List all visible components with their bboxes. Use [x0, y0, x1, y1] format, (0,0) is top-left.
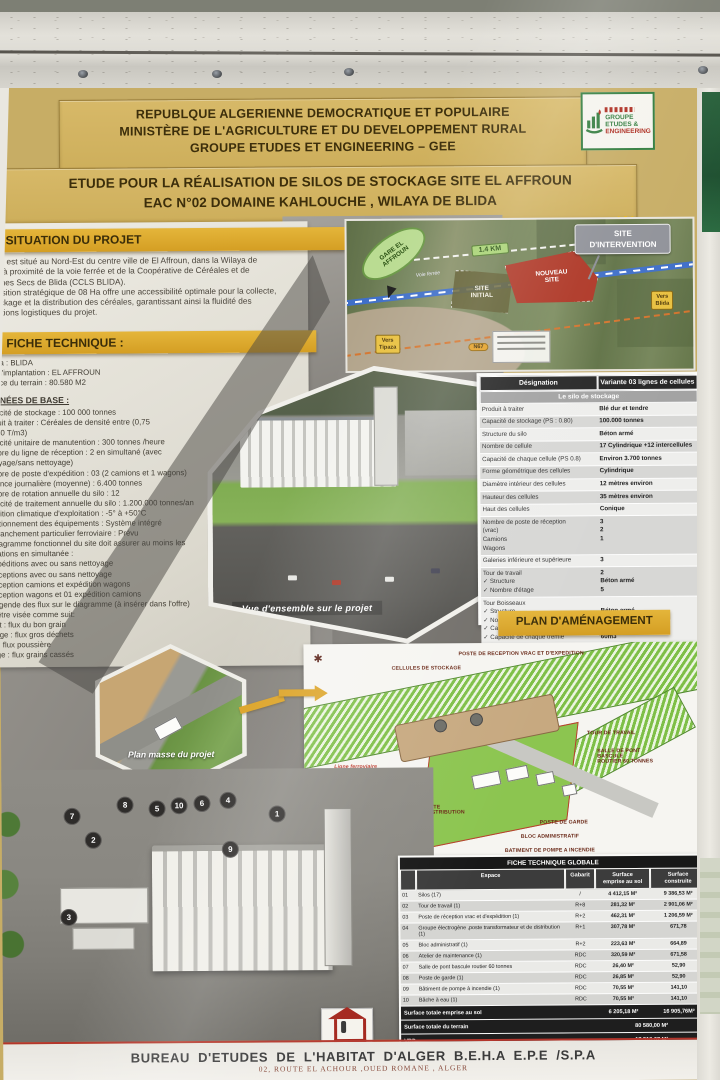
silo-table-label: Hauteur des cellules: [480, 491, 597, 503]
global-table-cell: 223,63 M²: [595, 939, 650, 949]
silo-table-label: Produit à traiter: [480, 403, 597, 415]
global-table-cell: 462,31 M²: [595, 911, 650, 921]
gee-logo-text: GROUPE ETUDES & ENGINEERING: [605, 107, 651, 135]
silo-table-value: 3: [598, 554, 697, 566]
render-low-building2: [72, 928, 134, 950]
render-marker: 8: [116, 797, 133, 814]
gee-text-line3: ENGINEERING: [605, 128, 651, 135]
global-table-cell: 52,90: [651, 972, 697, 982]
global-table-cell: 06: [401, 952, 417, 962]
map-railway-label: Voie ferrée: [416, 270, 441, 279]
plan-annotation: SALLE DE PONT BASCULE ROUTIER 60 TONNES: [597, 748, 657, 764]
silo-table-label: Capacité de stockage (PS : 0.80): [480, 416, 597, 428]
silo-table-value: Environ 3.700 tonnes: [598, 453, 697, 465]
global-table-cell: 52,90: [651, 961, 697, 971]
render-marker: 10: [170, 797, 187, 814]
plan-building: [561, 783, 577, 797]
photo-of-project-poster: REPUBLQUE ALGERIENNE DEMOCRATIQUE ET POP…: [0, 0, 720, 1080]
render-marker: 4: [219, 792, 236, 809]
global-table-cell: R+2: [565, 939, 595, 949]
global-table-cell: Tour de travail (1): [416, 900, 565, 911]
beha-roof-icon: [328, 1007, 366, 1019]
render-marker: 2: [85, 832, 102, 849]
plan-silo-circle: [470, 713, 483, 726]
global-table-cell: 26,85 M²: [596, 972, 651, 982]
global-table-cell: 141,10: [651, 994, 697, 1004]
map-gare-label: GARE EL AFFROUN: [354, 217, 435, 290]
plan-annotation: TOUR DE TRAVAIL: [587, 730, 635, 736]
silo-table-value: 3 2 1: [598, 516, 697, 554]
global-table-cell: Bâtiment de pompe à incendie (1): [417, 983, 566, 994]
map-route-badge: N67: [468, 343, 488, 351]
global-table-body: 01Silos (17)/4 412,15 M²9 386,53 M²02Tou…: [400, 889, 697, 1007]
gee-logo: GROUPE ETUDES & ENGINEERING: [581, 92, 655, 151]
compass-icon: ✱: [313, 652, 322, 665]
global-table-cell: 141,10: [651, 983, 697, 993]
global-table-cell: 07: [401, 963, 417, 973]
adjacent-poster-sliver: [702, 92, 720, 232]
global-table-col-header: [400, 870, 416, 891]
gee-logo-icon: [585, 104, 606, 138]
render-marker: 7: [64, 808, 81, 825]
global-table-cell: Groupe électrogène ,poste transformateur…: [416, 922, 565, 939]
masterplan-caption: Plan masse du projet: [92, 749, 250, 760]
render-car: [332, 580, 341, 585]
plan-annotation: POSTE DE RECEPTION VRAC ET D'EXPEDITION: [458, 650, 583, 656]
render-silo-battery: [152, 844, 333, 971]
silo-table-col1: Désignation: [480, 375, 598, 391]
silo-table-col2: Variante 03 lignes de cellules: [597, 375, 697, 391]
global-table-cell: RDC: [566, 994, 596, 1004]
global-table-cell: 70,55 M²: [596, 983, 651, 993]
silo-table-value: Béton armé: [597, 428, 697, 440]
global-table-cell: 671,58: [651, 950, 697, 960]
silo-spec-table: Désignation Variante 03 lignes de cellul…: [477, 372, 697, 626]
arrow-head-icon: [315, 685, 328, 701]
render-car: [385, 577, 394, 582]
global-table-cell: 09: [401, 985, 417, 995]
render-marker: 5: [149, 800, 166, 817]
global-table-cell: R+2: [565, 911, 595, 921]
bolt-icon: [344, 68, 354, 76]
map-legend-box: [493, 331, 551, 363]
global-table-cell: 01: [400, 891, 416, 901]
render-silos-block: [240, 416, 396, 487]
global-table-cell: 671,78: [650, 922, 697, 938]
map-distance-badge: 1.4 KM: [471, 242, 508, 256]
global-table-cell: Atelier de maintenance (1): [417, 950, 566, 961]
render-marker: 1: [269, 805, 286, 822]
silo-table-body: Produit à traiterBlé dur et tendreCapaci…: [480, 403, 697, 646]
global-table-cell: Bâche à eau (1): [417, 994, 566, 1005]
map-intervention-label: SITE D'INTERVENTION: [575, 223, 671, 254]
global-table-cell: 04: [400, 924, 416, 940]
silo-table-value: 17 Cylindrique +12 intercellules: [597, 440, 697, 452]
global-total-value: 6 205,18 M²: [596, 1005, 651, 1018]
render-work-tower: [324, 808, 353, 966]
global-table-col-header: Surface construite: [650, 868, 697, 889]
render-markers: 85106417293: [0, 88, 694, 90]
global-table-cell: 2 901,06 M²: [650, 900, 697, 910]
global-table-cell: RDC: [566, 972, 596, 982]
global-total-value: 80 580,00 M²: [596, 1019, 697, 1033]
situation-paragraph: Le site est situé au Nord-Est du centre …: [0, 254, 324, 318]
global-table-cell: 70,55 M²: [596, 994, 651, 1004]
bolt-icon: [698, 66, 708, 74]
render-car: [431, 569, 440, 574]
plan-annotation: BLOC ADMINISTRATIF: [521, 833, 579, 839]
global-table-cell: R+8: [565, 900, 595, 910]
render-marker: 3: [60, 909, 77, 926]
silo-table-label: Forme géométrique des cellules: [480, 466, 597, 478]
satellite-map: Voie ferrée SITE INITIAL NOUVEAU SITE SI…: [344, 217, 695, 373]
global-table-cell: 05: [400, 941, 416, 951]
render-headhouse-tower: [374, 387, 399, 486]
global-table-cell: 307,78 M²: [595, 922, 650, 938]
global-table-header: EspaceGabaritSurface emprise au solSurfa…: [400, 868, 697, 891]
render-marker: 9: [222, 841, 239, 858]
silo-table-value: 100.000 tonnes: [597, 415, 697, 427]
global-table-cell: 02: [400, 902, 416, 912]
silo-table-value: 35 mètres environ: [598, 491, 697, 503]
plan-annotation: POSTE DE GARDE: [540, 819, 588, 825]
global-table-cell: Silos (17): [416, 889, 565, 900]
global-table-col-header: Espace: [416, 868, 565, 890]
beha-house-icon: [334, 1019, 366, 1042]
fiche-heading: FICHE TECHNIQUE :: [0, 330, 316, 354]
arrow-connector: [279, 689, 317, 696]
map-site-initial: SITE INITIAL: [451, 269, 513, 313]
render-marker: 6: [193, 795, 210, 812]
silo-table-label: Structure du silo: [480, 428, 597, 440]
plan-annotation: CELLULES DE STOCKAGE: [392, 665, 462, 671]
fiche-items: Wilaya : BLIDALieu d'implantation : EL A…: [0, 356, 313, 389]
global-table-cell: R+1: [565, 922, 595, 938]
global-table-cell: Salle de pont bascule routier 60 tonnes: [417, 961, 566, 972]
render-vegetation: [1, 800, 29, 1000]
global-table-cell: 281,32 M²: [595, 900, 650, 910]
silo-table-value: 12 mètres environ: [598, 478, 697, 490]
silo-table-label: Galeries inférieure et supérieure: [481, 555, 598, 567]
global-table-cell: Bloc administratif (1): [416, 939, 565, 950]
global-table-cell: Poste de réception vrac et d'expédition …: [416, 911, 565, 922]
global-table-cell: 1 206,59 M²: [650, 911, 697, 921]
global-table-cell: RDC: [566, 950, 596, 960]
silo-table-value: 2 Béton armé 5: [598, 567, 697, 596]
silo-table-label: Haut des cellules: [480, 504, 597, 516]
global-table-cell: Poste de garde (1): [417, 972, 566, 983]
silo-table-label: Nombre de poste de réception (vrac) Cami…: [481, 517, 599, 555]
silo-table-value: Cylindrique: [598, 466, 697, 478]
global-table-col-header: Surface emprise au sol: [595, 868, 650, 889]
situation-heading: SITUATION DU PROJET: [0, 227, 346, 253]
global-table-cell: 9 386,53 M²: [650, 889, 697, 899]
silo-table-row: Nombre de poste de réception (vrac) Cami…: [481, 516, 697, 556]
header-plaque: REPUBLQUE ALGERIENNE DEMOCRATIQUE ET POP…: [59, 96, 588, 174]
footer-strip: BUREAU D'ETUDES DE L'HABITAT D'ALGER B.E…: [3, 1037, 697, 1080]
silo-table-label: Capacité de chaque cellule (PS 0.8): [480, 454, 597, 466]
global-table-cell: 08: [401, 974, 417, 984]
silo-table-value: Blé dur et tendre: [597, 403, 697, 415]
global-table-cell: 10: [401, 996, 417, 1006]
map-sign-blida: Vers Blida: [651, 291, 673, 310]
overview-caption: Vue d'ensemble sur le projet: [232, 601, 383, 616]
bolt-icon: [212, 70, 222, 78]
project-poster: REPUBLQUE ALGERIENNE DEMOCRATIQUE ET POP…: [0, 88, 697, 1080]
silo-table-header: Désignation Variante 03 lignes de cellul…: [480, 375, 697, 392]
render-car: [288, 575, 297, 580]
silo-table-label: Nombre de cellule: [480, 441, 597, 453]
global-table-cell: 320,59 M²: [596, 950, 651, 960]
bolt-icon: [78, 70, 88, 78]
plan-heading: PLAN D'AMÉNAGEMENT: [498, 610, 670, 636]
gee-arabic-mark: [605, 107, 635, 112]
global-table-cell: RDC: [566, 983, 596, 993]
global-table-cell: RDC: [566, 961, 596, 971]
global-total-label: Surface totale du terrain: [401, 1019, 596, 1033]
global-table-row: 04Groupe électrogène ,poste transformate…: [400, 922, 697, 941]
global-table-cell: 4 412,15 M²: [595, 889, 650, 899]
global-table-cell: 03: [400, 913, 416, 923]
silo-table-label: Diamètre intérieur des cellules: [480, 479, 597, 491]
silo-table-label: Tour de travail ✓ Structure ✓ Nombre d'é…: [481, 568, 599, 598]
plan-silo-circle: [434, 719, 447, 732]
global-total-label: Surface totale emprise au sol: [401, 1005, 596, 1019]
global-table-cell: 26,40 M²: [596, 961, 651, 971]
silo-table-row: Tour de travail ✓ Structure ✓ Nombre d'é…: [481, 567, 697, 598]
plan-annotation: BATIMENT DE POMPE A INCENDIE: [505, 847, 595, 853]
global-table-cell: /: [565, 889, 595, 899]
silo-table-value: Conique: [598, 503, 697, 515]
map-sign-tipaza: Vers Tipaza: [375, 335, 400, 354]
global-total-value: 16 905,76M²: [651, 1005, 697, 1018]
beha-figure-icon: [341, 1021, 346, 1033]
global-table-cell: 664,89: [650, 939, 697, 949]
adjacent-poster-sliver-low: [700, 858, 720, 1014]
global-table-col-header: Gabarit: [565, 868, 595, 889]
